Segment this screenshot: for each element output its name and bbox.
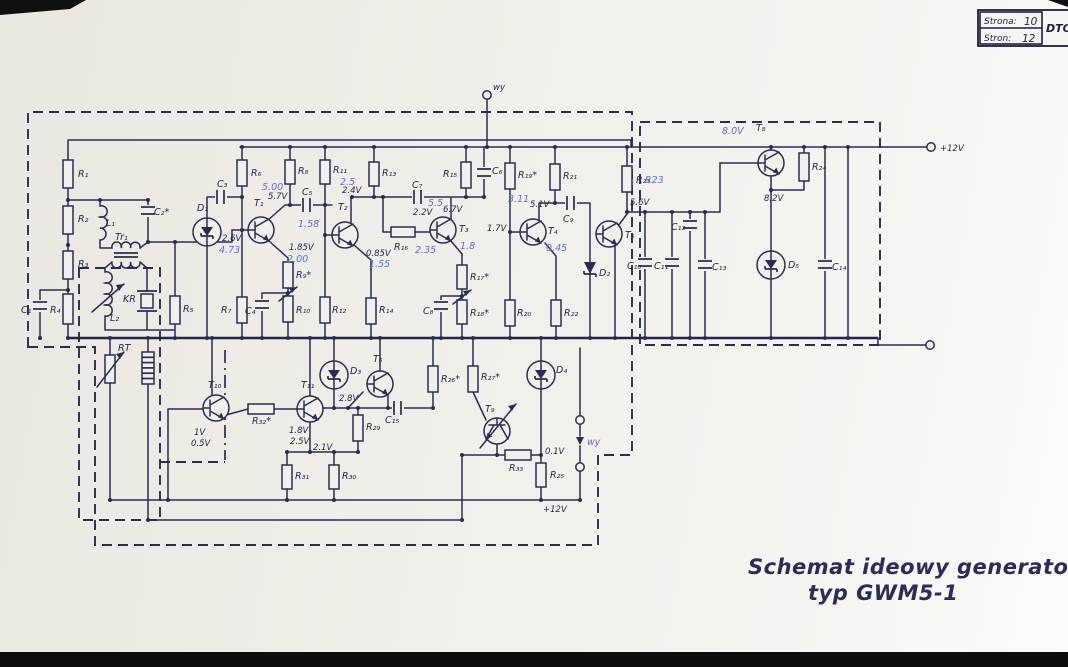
junction-dot (146, 336, 150, 340)
page-number-total: 12 (1022, 33, 1036, 45)
junction-dot (323, 145, 327, 149)
label-n200: 2.00 (287, 254, 308, 265)
label-C6: C₆ (492, 166, 503, 177)
label-n045: 0.45 (546, 243, 567, 254)
junction-dot (703, 336, 707, 340)
label-v05: 0.5V (191, 439, 212, 449)
resistor-R19 (505, 163, 515, 189)
terminal-out-lower (576, 463, 584, 471)
junction-dot (769, 145, 773, 149)
label-v085: 0.85V (366, 249, 392, 259)
resistor-R25 (536, 463, 546, 487)
crystal-KR (137, 291, 157, 311)
resistor-R2 (63, 206, 73, 234)
label-R22: R₂₂ (564, 308, 578, 319)
junction-dot (460, 336, 464, 340)
resistor-R30 (329, 465, 339, 489)
label-C15: C₁₅ (385, 415, 399, 426)
label-C2: C₂* (154, 207, 169, 218)
label-R14: R₁₄ (379, 305, 393, 316)
photo-edge-top-right (1048, 0, 1068, 7)
junction-dot (146, 240, 150, 244)
junction-dot (108, 498, 112, 502)
capacitor-C14 (818, 259, 832, 271)
resistor-R23 (622, 166, 632, 192)
terminal-out-upper (576, 416, 584, 424)
label-R5: R₅ (183, 304, 194, 315)
label-D5: D₅ (788, 260, 799, 271)
junction-dot (288, 203, 292, 207)
label-R20: R₂₀ (517, 308, 531, 319)
transistor-T10 (203, 395, 229, 421)
label-C9: C₉ (563, 214, 574, 225)
label-D2: D₂ (599, 268, 610, 279)
label-nR23: R23 (645, 175, 664, 186)
resistor-R15 (461, 162, 471, 188)
label-T5: T₅ (625, 230, 635, 241)
page-number-box: Strona: 10 Stron: 12 DTO- (978, 10, 1068, 46)
junction-dot (553, 145, 557, 149)
schematic-drawing: R₁R₂R₃R₄R₅R₆R₇R₈R₉*R₁₀R₁₁R₁₂R₁₃R₁₄R₁₅R₁₆… (0, 0, 1068, 667)
label-C11: C₁₁ (654, 261, 668, 272)
junction-dot (356, 406, 360, 410)
resistor-R9 (283, 262, 293, 288)
junction-dot (332, 450, 336, 454)
label-n473: 4.73 (219, 245, 240, 256)
label-R9: R₉* (296, 270, 311, 281)
junction-dot (485, 145, 489, 149)
capacitor-C1 (33, 300, 47, 312)
resistor-R11 (320, 160, 330, 184)
terminal-ground (926, 341, 934, 349)
junction-dot (846, 145, 850, 149)
label-C12: C₁₂ (671, 222, 685, 233)
label-C7: C₇ (412, 180, 423, 191)
junction-dot (823, 336, 827, 340)
resistor-R21 (550, 164, 560, 190)
heater-element (142, 352, 154, 384)
junction-dot (613, 336, 617, 340)
junction-dot (108, 336, 112, 340)
label-v56: 5.6V (630, 198, 651, 208)
junction-dot (471, 336, 475, 340)
junction-dot (210, 336, 214, 340)
label-n155: 1.55 (369, 259, 390, 270)
label-R8: R₈ (298, 166, 309, 177)
capacitor-C7 (412, 190, 424, 204)
label-T4: T₄ (548, 226, 558, 237)
label-v185: 1.85V (289, 243, 315, 253)
transistor-T8 (758, 150, 784, 176)
label-R32: R₃₂* (252, 416, 271, 427)
resistor-R18 (457, 300, 467, 324)
resistor-R16 (391, 227, 415, 237)
capacitor-C6 (477, 167, 491, 179)
resistor-R32 (248, 404, 274, 414)
junction-dot (823, 145, 827, 149)
junction-dot (769, 188, 773, 192)
label-nwy: wy (587, 437, 601, 448)
resistor-R6 (237, 160, 247, 186)
thermistor-RT (97, 352, 124, 387)
page-label-strona: Strona: (984, 17, 1017, 27)
junction-dot (846, 336, 850, 340)
junction-dot (378, 336, 382, 340)
junction-dot (66, 243, 70, 247)
junction-dot (508, 145, 512, 149)
junction-dot (308, 336, 312, 340)
label-n235: 2.35 (415, 245, 436, 256)
junction-dot (625, 210, 629, 214)
label-n18: 1.8 (460, 241, 475, 252)
label-R10: R₁₀ (296, 305, 310, 316)
label-v51: 5.1V (530, 200, 551, 210)
label-R24: R₂₄ (812, 162, 826, 173)
zener-diode-D1 (193, 218, 221, 246)
resistor-R24 (799, 153, 809, 181)
junction-dot (688, 210, 692, 214)
junction-dot (643, 336, 647, 340)
terminal-wy (483, 91, 491, 99)
label-KR: KR (123, 294, 136, 305)
resistor-R4 (63, 294, 73, 324)
label-L1: L₁ (106, 218, 115, 229)
label-R18: R₁₈* (470, 308, 489, 319)
resistor-R5 (170, 296, 180, 324)
junction-dot (588, 336, 592, 340)
label-T10: T₁₀ (208, 380, 222, 391)
junction-dot (482, 195, 486, 199)
junction-dot (670, 210, 674, 214)
junction-dot (460, 453, 464, 457)
label-T6: T₆ (373, 354, 383, 365)
junction-dot (688, 336, 692, 340)
transistor-T6 (367, 371, 393, 397)
junction-dot (703, 210, 707, 214)
junction-dot (66, 288, 70, 292)
capacitor-C9 (565, 196, 577, 210)
junction-dot (346, 406, 350, 410)
junction-dot (146, 198, 150, 202)
capacitor-C2 (141, 205, 155, 217)
junction-dot (205, 336, 209, 340)
capacitor-C13 (698, 259, 712, 271)
junction-dot (802, 145, 806, 149)
label-C8: C₈ (423, 306, 434, 317)
junction-dot (66, 198, 70, 202)
photo-edge-top-left (0, 0, 86, 15)
document-code: DTO- (1046, 22, 1068, 35)
junction-dot (431, 336, 435, 340)
label-T3: T₃ (459, 224, 469, 235)
label-C13: C₁₃ (712, 262, 726, 273)
junction-dot (66, 336, 70, 340)
label-R27: R₂₇* (481, 372, 500, 383)
label-R30: R₃₀ (342, 471, 356, 482)
junction-dot (240, 228, 244, 232)
transistor-T1 (248, 217, 274, 243)
junction-dot (539, 453, 543, 457)
resistor-R12 (320, 297, 330, 323)
transistor-T4 (520, 219, 546, 245)
resistor-R10 (283, 296, 293, 322)
junction-dot (332, 406, 336, 410)
capacitor-C15 (392, 401, 404, 415)
transistor-T2 (332, 222, 358, 248)
label-L2: L₂ (110, 313, 119, 324)
junction-dot (381, 195, 385, 199)
junction-dot (356, 450, 360, 454)
label-C14: C₁₄ (832, 262, 846, 273)
schematic-title-line1: Schemat ideowy generatora 5MHz (748, 555, 1068, 579)
arrowhead (508, 404, 516, 411)
resistor-R27 (468, 366, 478, 392)
label-v18: 1.8V (289, 426, 310, 436)
label-v26: 2.6V (222, 234, 243, 244)
junction-dot (578, 498, 582, 502)
label-T2: T₂ (338, 202, 348, 213)
label-v01: 0.1V (545, 447, 566, 457)
junction-dot (439, 336, 443, 340)
label-R11: R₁₁ (333, 165, 347, 176)
label-n158: 1.58 (298, 219, 319, 230)
photo-edge-bottom (0, 652, 1068, 667)
label-R13: R₁₃ (382, 168, 396, 179)
resistor-R3 (63, 251, 73, 279)
resistor-R31 (282, 465, 292, 489)
label-R26: R₂₆* (441, 374, 460, 385)
junction-dot (173, 240, 177, 244)
junction-dot (350, 195, 354, 199)
label-D4: D₄ (556, 365, 567, 376)
label-R33: R₃₃ (509, 463, 523, 474)
label-R3: R₃ (78, 259, 89, 270)
label-R7: R₇ (221, 305, 232, 316)
inductor-L2 (105, 272, 112, 316)
label-T1: T₁ (254, 198, 264, 209)
zener-diode-D4 (527, 361, 555, 389)
label-wy: wy (493, 83, 506, 93)
label-RT: RT (118, 343, 132, 354)
terminal-plus12 (927, 143, 935, 151)
label-R6: R₆ (251, 168, 262, 179)
page-number-current: 10 (1024, 16, 1038, 28)
label-v57: 5.7V (268, 192, 289, 202)
capacitor-C3 (215, 190, 227, 204)
label-v21: 2.1V (313, 443, 334, 453)
junction-dot (769, 336, 773, 340)
zener-diode-D2 (584, 262, 596, 277)
resistor-R1 (63, 160, 73, 188)
label-R25: R₂₅ (550, 470, 564, 481)
label-R21: R₂₁ (563, 171, 577, 182)
junction-dot (386, 406, 390, 410)
junction-dot (240, 145, 244, 149)
junction-dot (372, 195, 376, 199)
label-v1: 1V (194, 428, 206, 438)
junction-dot (460, 518, 464, 522)
resistor-R8 (285, 160, 295, 184)
label-D3: D₃ (350, 366, 361, 377)
junction-dot (323, 203, 327, 207)
label-n25: 2.5 (340, 177, 355, 188)
label-R31: R₃₁ (295, 471, 309, 482)
junction-dot (98, 198, 102, 202)
resistor-R22 (551, 300, 561, 326)
transformer-Tr1 (112, 242, 140, 268)
junction-dot (166, 498, 170, 502)
junction-dot (553, 201, 557, 205)
junction-dot (285, 450, 289, 454)
label-v17: 1.7V (487, 224, 508, 234)
capacitor-C8 (434, 300, 448, 312)
junction-dot (539, 336, 543, 340)
label-C5: C₅ (302, 187, 313, 198)
label-Tr1: Tr₁ (115, 232, 128, 243)
label-R16: R₁₆ (394, 242, 408, 253)
label-R17: R₁₇* (470, 272, 489, 283)
label-v22: 2.2V (413, 208, 434, 218)
junction-dot (332, 336, 336, 340)
capacitor-C5 (301, 198, 313, 212)
label-T8: T₈ (756, 123, 766, 134)
scanned-schematic-page: R₁R₂R₃R₄R₅R₆R₇R₈R₉*R₁₀R₁₁R₁₂R₁₃R₁₄R₁₅R₁₆… (0, 0, 1068, 667)
schematic-title-line2: typ GWM5-1 (808, 581, 958, 605)
resistor-R33 (505, 450, 531, 460)
transistor-T11 (297, 396, 323, 422)
capacitor-C4 (255, 299, 269, 311)
junction-dot (508, 336, 512, 340)
junction-dot (173, 336, 177, 340)
junction-dot (288, 145, 292, 149)
label-C10: C₁₀ (627, 261, 641, 272)
label-T9: T₉ (485, 404, 495, 415)
junction-dot (372, 145, 376, 149)
label-n80: 8.0V (722, 126, 745, 137)
label-R15: R₁₅ (443, 169, 457, 180)
junction-dot (308, 450, 312, 454)
label-v82: 8.2V (764, 194, 785, 204)
junction-dot (240, 195, 244, 199)
resistor-R17 (457, 265, 467, 289)
label-C4: C₄ (245, 306, 256, 317)
label-C3: C₃ (217, 179, 228, 190)
label-p12b: +12V (543, 505, 568, 515)
label-v28: 2.8V (339, 394, 360, 404)
label-n500: 5.00 (262, 182, 283, 193)
transistor-T9 (484, 418, 510, 444)
label-C1: C₁ (21, 305, 32, 316)
label-T11: T₁₁ (301, 380, 315, 391)
zener-diode-D5 (757, 251, 785, 279)
junction-dot (285, 498, 289, 502)
resistor-R14 (366, 298, 376, 324)
resistor-R29 (353, 415, 363, 441)
resistor-R26 (428, 366, 438, 392)
junction-dot (643, 210, 647, 214)
label-R19: R₁₉* (518, 170, 537, 181)
transistor-T5 (596, 221, 622, 247)
resistor-R20 (505, 300, 515, 326)
label-v25: 2.5V (290, 437, 311, 447)
junction-dot (464, 145, 468, 149)
junction-dot (431, 406, 435, 410)
junction-dot (508, 230, 512, 234)
junction-dot (369, 336, 373, 340)
junction-dot (625, 145, 629, 149)
junction-dot (240, 336, 244, 340)
junction-dot (146, 518, 150, 522)
label-R2: R₂ (78, 214, 89, 225)
junction-dot (260, 336, 264, 340)
page-label-stron: Stron: (984, 34, 1011, 44)
label-R1: R₁ (78, 169, 89, 180)
label-R29: R₂₉ (366, 422, 380, 433)
junction-dot (332, 498, 336, 502)
junction-dot (286, 291, 290, 295)
junction-dot (495, 453, 499, 457)
label-p12t: +12V (940, 144, 965, 154)
junction-dot (554, 336, 558, 340)
junction-dot (670, 336, 674, 340)
junction-dot (539, 498, 543, 502)
junction-dot (286, 336, 290, 340)
transistor-T3 (430, 217, 456, 243)
junction-dot (323, 233, 327, 237)
label-n311: 3.11 (508, 194, 529, 205)
label-D1: D₁ (197, 203, 208, 214)
junction-dot (38, 336, 42, 340)
junction-dot (464, 195, 468, 199)
connector-arrow (576, 437, 584, 445)
resistor-R13 (369, 162, 379, 186)
junction-dot (460, 294, 464, 298)
label-v67: 6.7V (443, 205, 464, 215)
label-R12: R₁₂ (332, 305, 346, 316)
junction-dot (323, 336, 327, 340)
zener-diode-D3 (320, 361, 348, 389)
label-n55: 5.5 (428, 198, 443, 209)
label-R4: R₄ (50, 305, 61, 316)
